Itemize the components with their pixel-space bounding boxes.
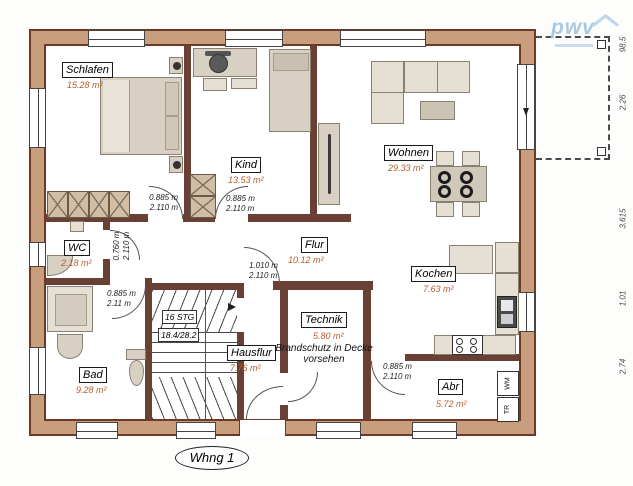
dryer: TR (497, 397, 519, 422)
window-kochen-right (517, 292, 535, 332)
room-label-schlafen: Schlafen (62, 62, 113, 78)
wall-kind-wohnen (310, 46, 317, 222)
room-label-abr: Abr (438, 379, 463, 395)
wardrobe-cell (68, 191, 89, 218)
door-width: 1.010 m (249, 261, 278, 271)
dining-chair (462, 151, 480, 166)
wall-wc-bad (46, 278, 110, 285)
room-area-schlafen: 15.28 m² (67, 80, 103, 90)
bed-blanket (103, 80, 130, 152)
burner-icon (456, 346, 463, 353)
window-bad-bottom (76, 422, 118, 439)
place-setting (438, 185, 451, 198)
door-dim-wc: 0.760 m 2.110 m (112, 222, 132, 270)
burner-icon (470, 346, 477, 353)
room-area-wc: 2.18 m² (61, 258, 92, 268)
wardrobe-cell (109, 191, 130, 218)
window-bad-left (29, 347, 46, 395)
door-height: 2.110 m (140, 203, 178, 213)
wall-bad-stairs (145, 278, 152, 419)
room-label-wohnen: Wohnen (384, 145, 433, 161)
terrace-post (597, 147, 606, 156)
dimension-right-4: 1.01 (619, 281, 628, 317)
dimension-right-1: 98.5 (619, 27, 628, 63)
room-label-kind: Kind (231, 157, 261, 173)
washing-machine-label: WM (504, 377, 511, 389)
window-abr-bottom (412, 422, 457, 439)
window-wc-left (29, 242, 46, 267)
washing-machine: WM (497, 371, 519, 396)
double-bed (100, 77, 182, 155)
room-label-hausflur: Hausflur (227, 345, 276, 361)
kitchen-sink (497, 296, 517, 328)
dining-table (430, 166, 487, 202)
bathroom-sink (57, 334, 83, 359)
sofa-cushion-line (437, 62, 438, 92)
dimension-right-5: 2.74 (619, 349, 628, 385)
logo-subtext-bar (555, 44, 593, 47)
room-area-flur: 10.12 m² (288, 255, 324, 265)
room-area-abr: 5.72 m² (436, 399, 467, 409)
room-area-kochen: 7.63 m² (423, 284, 454, 294)
sink-basin (501, 300, 513, 311)
sofa-cushion-line (372, 92, 403, 93)
window-kind-top (225, 30, 283, 47)
sofa-corner (371, 61, 404, 124)
stove (452, 335, 483, 355)
room-area-bad: 9.28 m² (76, 385, 107, 395)
door-width: 0.885 m (226, 194, 255, 204)
door-dim-abr: 0.885 m 2.110 m (383, 362, 412, 382)
wall-technik-top (273, 281, 373, 290)
place-setting (438, 171, 451, 184)
wall-stairs-right (237, 290, 244, 298)
window-stair-bottom (176, 422, 216, 439)
dryer-label: TR (505, 405, 512, 414)
wardrobe-cell (89, 191, 110, 218)
note-line1: Brandschutz in Decke (258, 343, 390, 354)
staircase: 16 STG 18.4/28.2 (152, 290, 237, 419)
single-bed (269, 49, 311, 132)
door-width: 0.885 m (107, 289, 136, 299)
stair-steps-label: 16 STG (162, 310, 197, 324)
shower-tray (55, 294, 87, 326)
stair-treads (152, 377, 237, 419)
window-technik-bottom (316, 422, 361, 439)
terrace-outline (536, 36, 610, 160)
door-width: 0.760 m (112, 222, 122, 270)
sideboard-handle (328, 134, 331, 194)
fire-protection-note: Brandschutz in Decke vorsehen (258, 343, 390, 365)
nightstand (169, 156, 183, 173)
kitchen-counter (495, 242, 519, 273)
note-line2: vorsehen (258, 354, 390, 365)
floor-plan-canvas: pwv 16 STG 18.4/28.2 (0, 0, 633, 486)
room-label-bad: Bad (79, 367, 107, 383)
front-door-opening (239, 420, 286, 436)
wardrobe-schlafen (47, 191, 130, 218)
pwv-logo: pwv (551, 16, 595, 40)
room-label-wc: WC (64, 240, 90, 256)
toilet-tank (126, 349, 146, 360)
pillow (165, 116, 179, 150)
wall-kochen-abr (405, 354, 519, 361)
wall-stairs-top (145, 283, 244, 290)
place-setting (460, 185, 473, 198)
lamp-icon (173, 62, 181, 70)
dining-chair (436, 202, 454, 217)
room-area-wohnen: 29.33 m² (388, 163, 424, 173)
door-dim-kind: 0.885 m 2.110 m (226, 194, 255, 214)
terrace-door-swing-line (526, 80, 527, 108)
desk-cabinet (203, 78, 227, 91)
stair-ratio-label: 18.4/28.2 (158, 328, 199, 342)
desk-chair (209, 54, 228, 73)
burner-icon (470, 338, 477, 345)
pillow (165, 82, 179, 116)
window-wohnen-top (340, 30, 426, 47)
room-area-technik: 5.80 m² (313, 331, 344, 341)
room-label-flur: Flur (301, 237, 328, 253)
window-schlafen-top (88, 30, 145, 47)
sofa-cushion-line (404, 62, 405, 92)
pwv-logo-text: pwv (551, 16, 595, 39)
dimension-right-2: 2.26 (619, 85, 628, 121)
stair-divider (205, 290, 206, 419)
nightstand (169, 57, 183, 74)
wall (248, 214, 351, 222)
window-schlafen-left (29, 88, 46, 148)
dining-chair (462, 202, 480, 217)
door-height: 2.110 m (249, 271, 278, 281)
terrace-post (597, 40, 606, 49)
door-dim-hausflur: 1.010 m 2.110 m (249, 261, 278, 281)
dining-chair (436, 151, 454, 166)
dimension-right-3: 3.615 (619, 201, 628, 237)
shelf-cell (190, 196, 216, 218)
lamp-icon (173, 161, 181, 169)
door-height: 2.11 m (107, 299, 136, 309)
shelf-kind (190, 174, 216, 218)
room-area-hausflur: 7.76 m² (230, 363, 261, 373)
coffee-table (420, 101, 455, 120)
room-label-technik: Technik (301, 312, 347, 328)
wc-cistern (70, 221, 84, 232)
terrace-door-arrow-icon (523, 108, 529, 116)
door-height: 2.110 m (122, 222, 132, 270)
sideboard (318, 123, 340, 205)
room-label-kochen: Kochen (411, 266, 456, 282)
door-height: 2.110 m (226, 204, 255, 214)
door-dim-bad: 0.885 m 2.11 m (107, 289, 136, 309)
shelf-cell (190, 174, 216, 196)
desk-cabinet (231, 78, 257, 89)
stair-direction-arrow-icon (228, 303, 236, 311)
door-height: 2.110 m (383, 372, 412, 382)
logo-roof-icon (604, 14, 619, 27)
shower (47, 286, 93, 332)
wardrobe-cell (47, 191, 68, 218)
apartment-title: Whng 1 (175, 446, 249, 470)
door-width: 0.885 m (140, 193, 178, 203)
place-setting (460, 171, 473, 184)
burner-icon (456, 338, 463, 345)
door-dim-schlafen: 0.885 m 2.110 m (140, 193, 178, 213)
pillow (273, 53, 309, 71)
room-area-kind: 13.53 m² (228, 175, 264, 185)
sink-drainer (501, 314, 513, 324)
